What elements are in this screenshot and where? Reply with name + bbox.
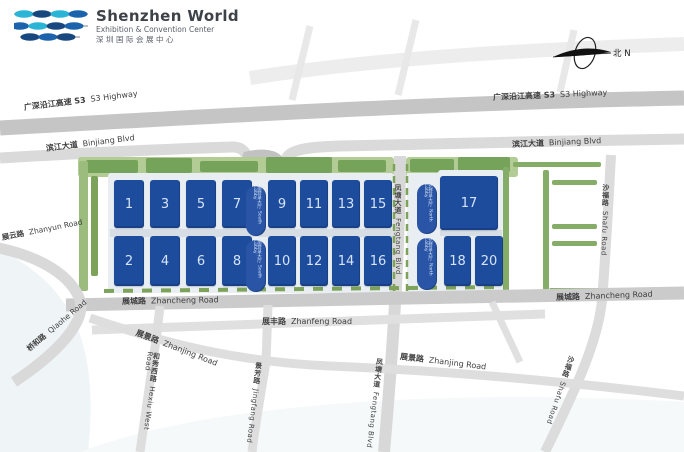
north-lobby-label-cn: 北登录大厅 — [428, 184, 433, 207]
hall-5: 5 — [186, 180, 216, 228]
label-zhancheng-left: 展城路Zhancheng Road — [122, 296, 219, 306]
north-lobby-upper: 北登录大厅North Lobby — [417, 184, 437, 234]
hall-20-number: 20 — [481, 254, 498, 269]
hall-7-number: 7 — [233, 197, 241, 212]
hall-3-number: 3 — [161, 197, 169, 212]
hall-12: 12 — [300, 236, 328, 286]
logo-subtitle-cn: 深圳国际会展中心 — [96, 34, 176, 45]
hall-17-number: 17 — [461, 196, 478, 211]
hall-2-number: 2 — [125, 254, 133, 269]
hall-1-number: 1 — [125, 197, 133, 212]
hall-18: 18 — [444, 236, 471, 286]
shenzhen-world-logo-icon — [14, 6, 88, 46]
hall-2: 2 — [114, 236, 144, 286]
south-lobby-label-cn: 南登录大厅 — [257, 186, 262, 209]
hall-1: 1 — [114, 180, 144, 228]
label-shafu-top: 沙福路Shafu Road — [600, 184, 609, 256]
hall-5-number: 5 — [197, 197, 205, 212]
hall-11: 11 — [300, 180, 328, 228]
label-fengtang-mid: 凤塘大道Fengtang Blvd — [394, 184, 401, 275]
hall-6: 6 — [186, 236, 216, 286]
north-lobby-lower: 北登录大厅North Lobby — [417, 238, 437, 290]
hall-10-number: 10 — [274, 254, 291, 269]
hall-11-number: 11 — [306, 197, 323, 212]
hall-14: 14 — [332, 236, 360, 286]
south-lobby-lower: 南登录大厅South Lobby — [246, 240, 266, 292]
hall-8-number: 8 — [233, 254, 241, 269]
shore-wash — [0, 250, 91, 452]
hall-17: 17 — [440, 176, 498, 230]
hall-13-number: 13 — [338, 197, 355, 212]
logo-subtitle-en: Exhibition & Convention Center — [96, 25, 214, 34]
hall-4-number: 4 — [161, 254, 169, 269]
hall-3: 3 — [150, 180, 180, 228]
hall-12-number: 12 — [306, 254, 323, 269]
s3-highway-road — [0, 98, 684, 128]
compass-north-label: 北 N — [613, 47, 631, 59]
hall-9-number: 9 — [278, 197, 286, 212]
hall-4: 4 — [150, 236, 180, 286]
hall-10: 10 — [268, 236, 296, 286]
hall-20: 20 — [475, 236, 503, 286]
hall-18-number: 18 — [449, 254, 466, 269]
hall-15-number: 15 — [370, 197, 387, 212]
logo-title: Shenzhen World — [96, 7, 239, 25]
hall-14-number: 14 — [338, 254, 355, 269]
hall-16-number: 16 — [370, 254, 387, 269]
parking-hedges — [503, 162, 603, 293]
hall-6-number: 6 — [197, 254, 205, 269]
hall-13: 13 — [332, 180, 360, 228]
venue-map: Shenzhen World Exhibition & Convention C… — [0, 0, 684, 452]
hall-15: 15 — [364, 180, 392, 228]
label-zhanfeng: 展丰路Zhanfeng Road — [262, 318, 352, 326]
south-lobby-upper: 南登录大厅South Lobby — [246, 186, 266, 236]
hall-9: 9 — [268, 180, 296, 228]
hall-16: 16 — [364, 236, 392, 286]
green-left-2 — [91, 176, 98, 276]
